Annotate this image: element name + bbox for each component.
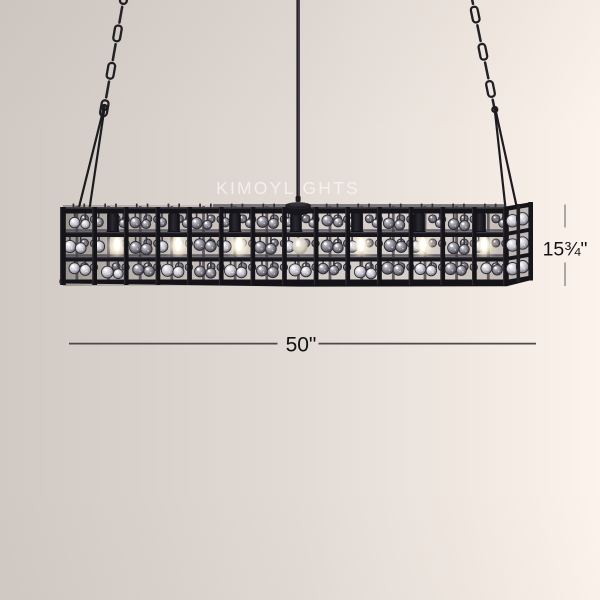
svg-text:50": 50" (286, 334, 317, 357)
svg-text:15¾": 15¾" (543, 239, 588, 261)
